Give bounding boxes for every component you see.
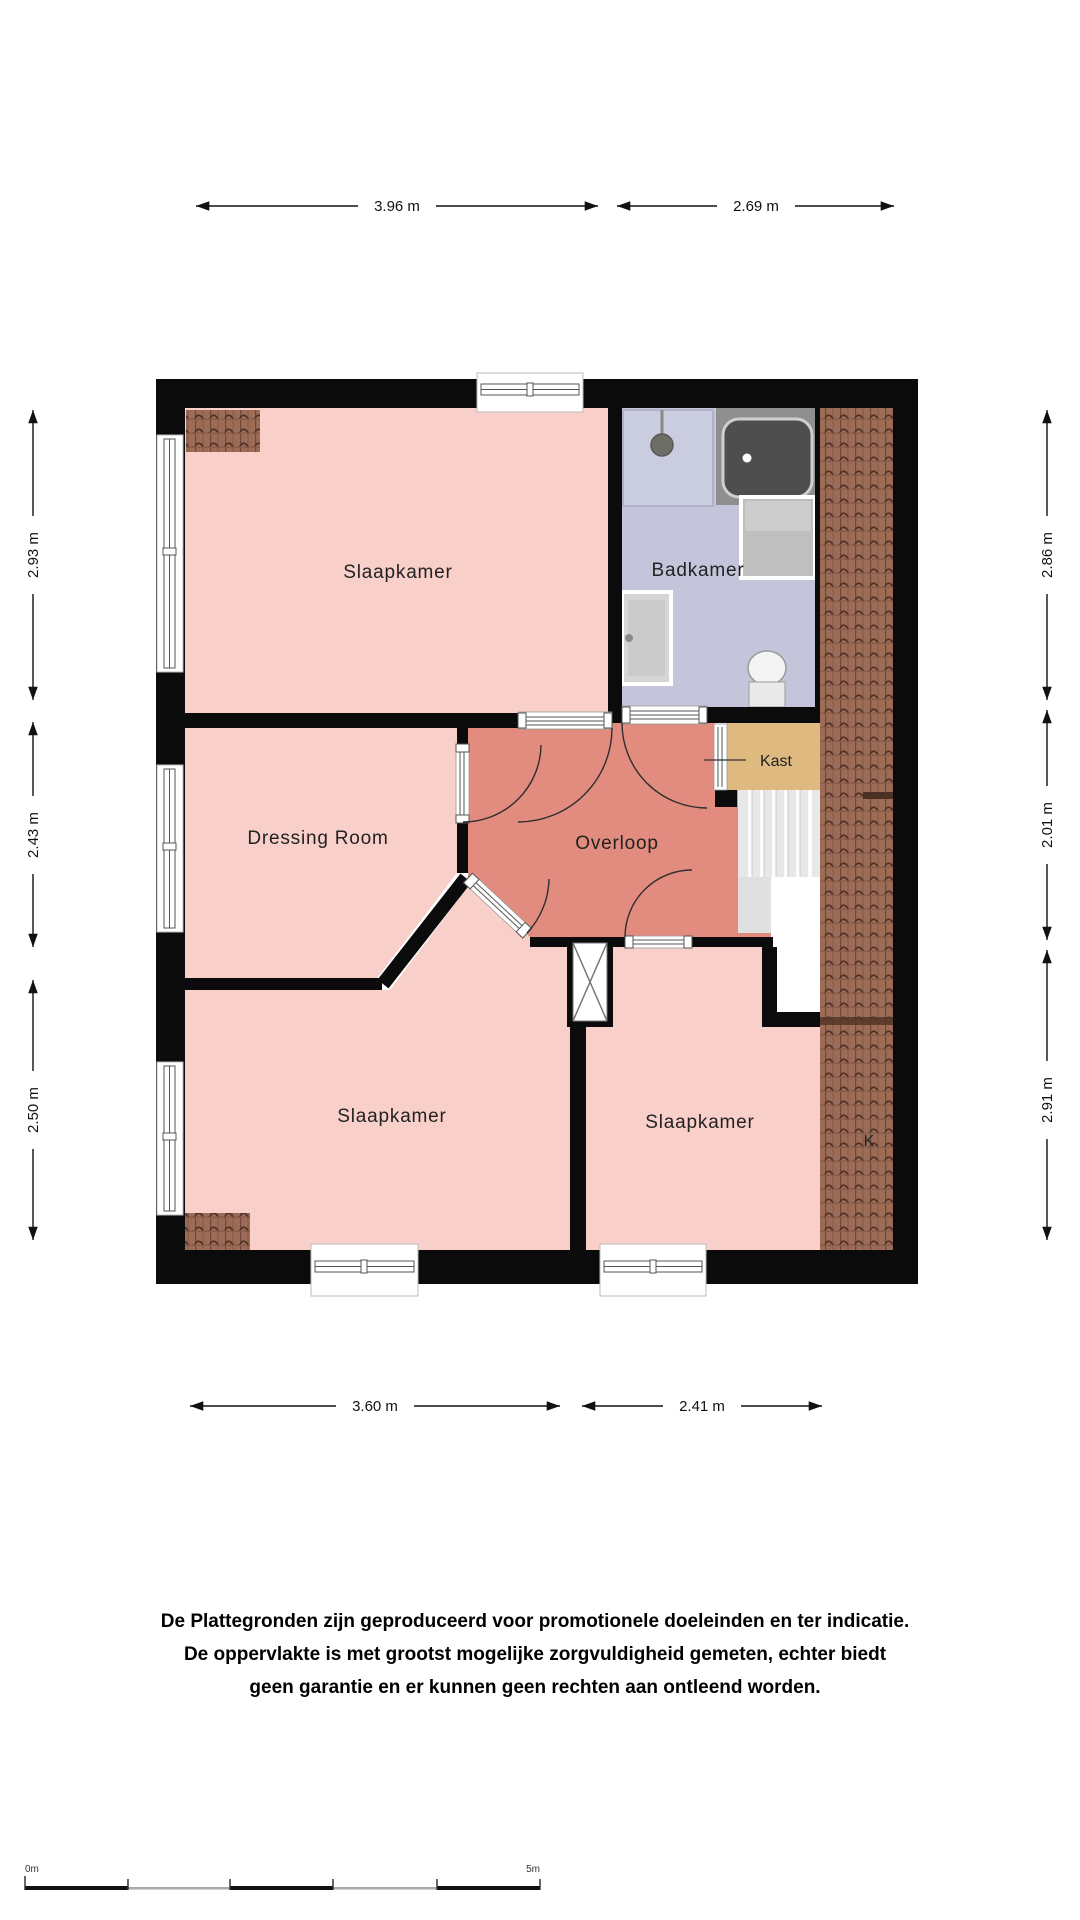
dim-label-left-bottom: 2.50 m [25, 1087, 42, 1133]
wall-stairwell-south [762, 1012, 820, 1027]
wall-badkamer-west [608, 408, 622, 723]
door-badkamer [622, 706, 707, 724]
wall-bedroom-divider [570, 1027, 586, 1250]
label-overloop: Overloop [575, 833, 659, 854]
stairwell-void [771, 877, 820, 1012]
toilet-tank [749, 682, 785, 707]
label-slaapkamer-bl: Slaapkamer [337, 1106, 446, 1127]
scale-bar-end-label: 5m [526, 1864, 540, 1875]
dim-label-left-middle: 2.43 m [25, 812, 42, 858]
label-dressing-room: Dressing Room [247, 828, 388, 849]
disclaimer-line-2: De oppervlakte is met grootst mogelijke … [184, 1644, 887, 1665]
dim-label-left-top: 2.93 m [25, 532, 42, 578]
room-slaapkamer-top-floor [185, 408, 608, 713]
stairs-landing [738, 877, 771, 933]
roof-ridge-mark-lower [820, 1017, 893, 1025]
room-slaapkamer-br-floor-upper [613, 947, 762, 1027]
roof-strip-right [820, 404, 893, 1250]
door-slaapkamer-top [518, 712, 612, 729]
wall-kast-stub [715, 790, 737, 807]
window-left-middle [157, 765, 183, 932]
floorplan-canvas: 3.96 m 2.69 m 3.60 m 2.41 m 2.93 m 2.43 … [0, 0, 1080, 1920]
window-bottom-left [311, 1244, 418, 1296]
dim-label-bottom-left: 3.60 m [352, 1398, 398, 1415]
wall-stairwell-west [762, 947, 777, 1017]
door-slaapkamer-br [625, 936, 692, 948]
wall-overloop-south-a [530, 937, 567, 947]
window-top [477, 373, 583, 412]
window-left-bottom [157, 1062, 183, 1215]
disclaimer-line-3: geen garantie en er kunnen geen rechten … [249, 1677, 820, 1698]
dim-label-bottom-right: 2.41 m [679, 1398, 725, 1415]
wall-badkamer-east [815, 408, 820, 723]
wall-overloop-south-c [692, 937, 773, 947]
shower-tray [623, 410, 713, 506]
roof-patch-top-left [186, 410, 260, 452]
label-slaapkamer-br: Slaapkamer [645, 1112, 754, 1133]
wall-outer-right [893, 379, 918, 1284]
door-kast [714, 724, 727, 790]
bathtub [723, 419, 812, 497]
roof-ridge-mark-upper [863, 792, 893, 799]
vanity-top [745, 501, 811, 531]
dim-label-top-left: 3.96 m [374, 198, 420, 215]
washbasin-bowl [628, 600, 665, 676]
disclaimer-line-1: De Plattegronden zijn geproduceerd voor … [161, 1611, 910, 1632]
bathtub-drain-icon [743, 454, 752, 463]
label-k-marker: K [864, 1133, 875, 1150]
dim-label-right-top: 2.86 m [1039, 532, 1056, 578]
toilet-bowl [748, 651, 786, 685]
window-left-top [157, 435, 183, 672]
wall-outer-bottom [156, 1250, 918, 1284]
wall-slaapkamer-top-south [185, 713, 518, 728]
window-bottom-right [600, 1244, 706, 1296]
scale-bar: 0m 5m [25, 1864, 540, 1890]
wall-dressing-south [185, 978, 382, 990]
washbasin-tap-icon [625, 634, 633, 642]
dim-label-right-middle: 2.01 m [1039, 802, 1056, 848]
shower-drain-icon [651, 434, 673, 456]
label-kast: Kast [760, 753, 793, 770]
label-slaapkamer-top: Slaapkamer [343, 562, 452, 583]
label-badkamer: Badkamer [652, 560, 745, 581]
scale-bar-start-label: 0m [25, 1864, 39, 1875]
door-dressing [456, 744, 469, 823]
wall-badkamer-south [707, 707, 818, 723]
floorplan-page: 3.96 m 2.69 m 3.60 m 2.41 m 2.93 m 2.43 … [0, 0, 1080, 1920]
disclaimer-block: De Plattegronden zijn geproduceerd voor … [161, 1611, 910, 1698]
dim-label-top-right: 2.69 m [733, 198, 779, 215]
dim-label-right-bottom: 2.91 m [1039, 1077, 1056, 1123]
wall-overloop-south-b [613, 937, 625, 947]
